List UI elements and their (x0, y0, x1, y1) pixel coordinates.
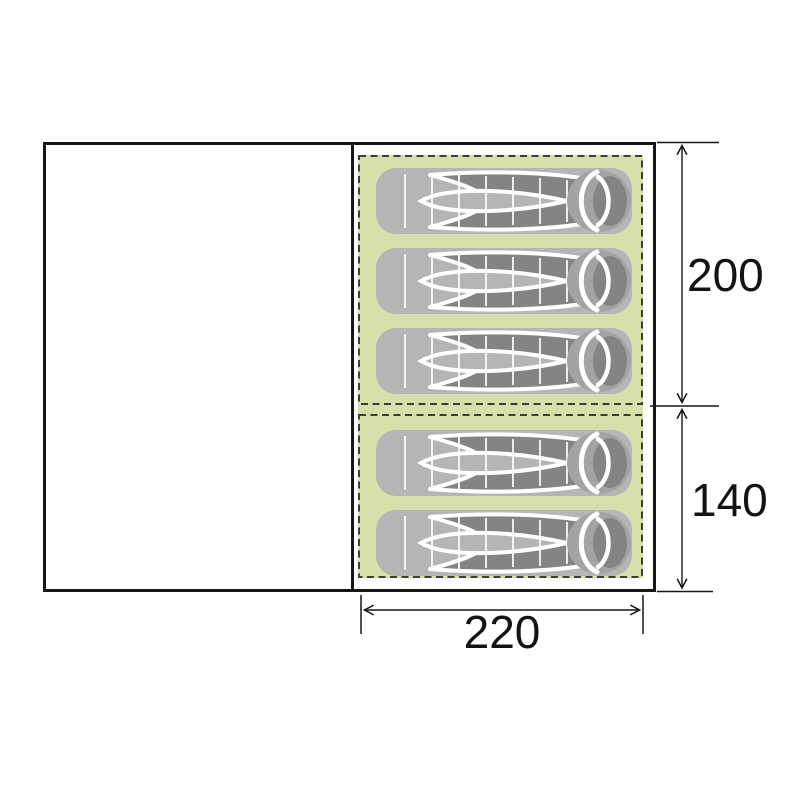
sleeping-bag-icon (376, 168, 632, 234)
dimension-label-main-depth: 200 (687, 252, 764, 298)
sleeping-bag-icon (376, 328, 632, 394)
sleeping-bag-icon (376, 430, 632, 496)
sleeping-bag-icon (376, 510, 632, 576)
floorplan-svg (0, 0, 800, 800)
tent-floorplan-diagram: 200 140 220 (0, 0, 800, 800)
dimension-label-width: 220 (464, 609, 541, 655)
sleeping-bag-icon (376, 248, 632, 314)
dimension-label-second-depth: 140 (691, 477, 768, 523)
